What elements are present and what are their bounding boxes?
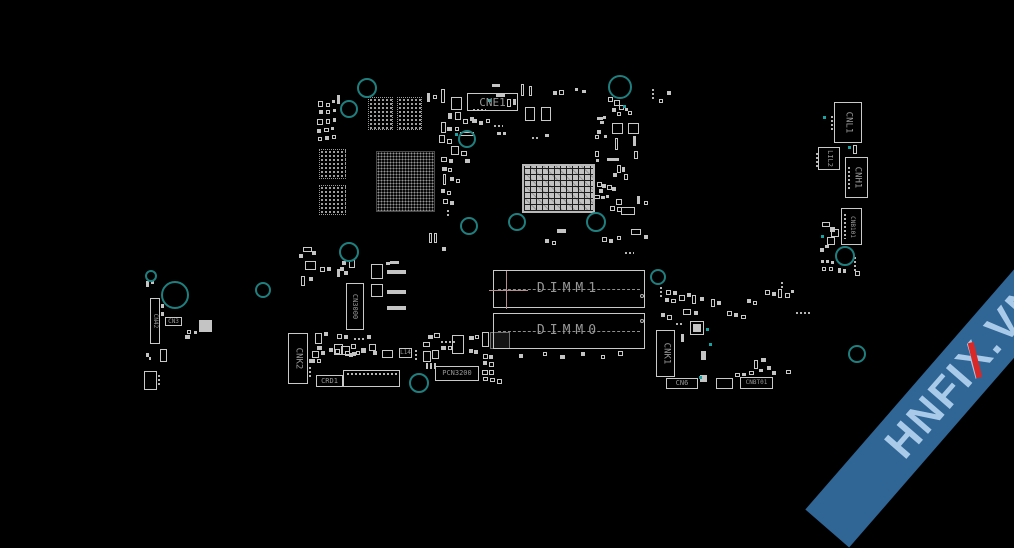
small-component	[609, 239, 613, 243]
small-component	[628, 111, 632, 115]
small-component	[673, 291, 677, 295]
small-component	[843, 269, 846, 273]
small-component	[430, 363, 432, 369]
small-component	[553, 91, 557, 95]
hole-highlight-circle	[508, 213, 526, 231]
small-component	[822, 222, 830, 227]
small-component	[308, 366, 313, 377]
small-component	[575, 88, 578, 91]
via-highlight	[709, 343, 712, 346]
small-component	[493, 124, 503, 127]
small-component	[149, 357, 151, 360]
small-component	[344, 271, 348, 275]
small-component	[333, 118, 336, 122]
small-component	[387, 306, 406, 310]
small-component	[303, 247, 312, 252]
small-component	[742, 373, 746, 376]
small-component	[606, 195, 609, 198]
small-component	[433, 95, 437, 99]
small-component	[596, 159, 599, 162]
small-component	[373, 351, 377, 355]
small-component	[829, 267, 833, 271]
small-component	[441, 122, 446, 133]
small-component	[353, 337, 365, 341]
small-component	[778, 289, 782, 298]
small-component	[194, 331, 197, 334]
small-component	[791, 290, 794, 293]
padgrid-chip[interactable]	[397, 97, 422, 130]
small-component	[531, 136, 540, 139]
small-component	[631, 229, 641, 235]
small-component	[541, 107, 551, 121]
padgrid-chip[interactable]	[368, 97, 393, 130]
hole-highlight-circle	[848, 345, 866, 363]
via-highlight	[623, 105, 626, 108]
small-component	[427, 93, 430, 102]
small-component	[853, 145, 857, 154]
small-component	[734, 313, 738, 317]
small-component	[423, 342, 430, 347]
small-component	[581, 352, 585, 356]
component-label: CNB101	[849, 216, 855, 238]
small-component	[414, 349, 419, 362]
component-label: CNL1	[844, 112, 853, 134]
small-component	[831, 261, 834, 264]
component-cn42[interactable]: CN42	[150, 298, 160, 344]
component-cn3000[interactable]: CN3000	[346, 283, 364, 330]
small-component	[469, 336, 474, 340]
hole-highlight-circle	[458, 130, 476, 148]
small-component	[451, 146, 459, 155]
small-component	[519, 354, 523, 358]
small-component	[434, 333, 440, 338]
small-component	[161, 304, 164, 308]
small-component	[759, 369, 763, 372]
component-l14[interactable]: L14	[399, 348, 412, 358]
small-component	[486, 119, 490, 123]
component-label: CN6	[676, 380, 689, 387]
small-component	[387, 270, 406, 274]
small-component	[326, 103, 330, 107]
small-component	[820, 248, 824, 252]
small-component	[483, 361, 487, 365]
small-component	[617, 165, 621, 173]
component-label: CNH1	[852, 167, 861, 189]
small-component	[367, 335, 371, 339]
small-component	[463, 119, 468, 124]
small-component	[749, 371, 754, 375]
hole-highlight-circle	[409, 373, 429, 393]
small-component	[615, 138, 618, 150]
small-component	[456, 179, 460, 183]
small-component	[503, 132, 506, 135]
small-component	[687, 293, 691, 297]
small-component	[644, 235, 648, 239]
small-component	[455, 112, 461, 120]
component-label: CN3	[168, 319, 179, 325]
small-component	[617, 112, 621, 116]
small-component	[475, 335, 479, 339]
small-component	[607, 158, 619, 161]
component-label: DIMM0	[494, 323, 644, 338]
small-component	[665, 298, 669, 302]
small-component	[483, 377, 488, 381]
small-component	[529, 86, 532, 96]
small-component	[361, 348, 366, 353]
small-component	[318, 137, 322, 141]
small-component	[337, 95, 340, 104]
small-component	[582, 90, 586, 93]
small-component	[637, 196, 640, 204]
small-component	[185, 335, 190, 339]
small-component	[659, 99, 663, 103]
small-component	[559, 90, 564, 95]
padgrid-chip[interactable]	[319, 185, 346, 215]
small-component	[349, 353, 353, 357]
small-component	[601, 196, 605, 199]
small-component	[661, 313, 665, 317]
small-component	[161, 312, 164, 316]
small-component	[474, 350, 478, 354]
small-component	[144, 371, 157, 390]
component-cnk1[interactable]: CNK1	[656, 330, 675, 377]
small-component	[694, 311, 698, 315]
small-component	[612, 108, 616, 112]
small-component	[482, 332, 489, 347]
component-label: CRD1	[321, 378, 338, 385]
small-component	[434, 233, 437, 243]
component-label: DIMM1	[494, 281, 644, 296]
small-component	[675, 322, 684, 326]
small-component	[299, 254, 303, 258]
small-component	[332, 100, 335, 103]
small-component	[681, 334, 684, 342]
small-component	[351, 344, 356, 349]
component-label: CNE1	[479, 97, 506, 108]
small-component	[489, 355, 493, 359]
small-component	[157, 374, 160, 386]
small-component	[329, 348, 333, 352]
small-component	[465, 159, 470, 163]
small-component	[633, 136, 636, 146]
component-cn3[interactable]: CN3	[165, 317, 182, 326]
small-component	[439, 135, 445, 143]
small-component	[441, 157, 447, 162]
via-highlight	[699, 376, 702, 379]
small-component	[382, 350, 393, 358]
hole-highlight-circle	[340, 100, 358, 118]
small-component	[602, 184, 606, 188]
small-component	[711, 299, 715, 307]
small-component	[497, 379, 502, 384]
small-component	[443, 174, 446, 185]
component-label: CN3000	[352, 294, 359, 319]
small-component	[423, 351, 431, 362]
component-lil2[interactable]: LIL2	[818, 147, 840, 170]
small-component	[624, 251, 634, 254]
small-component	[545, 239, 549, 243]
component-cn6[interactable]: CN6	[666, 378, 698, 389]
small-component	[325, 136, 329, 140]
component-label: CNBT01	[746, 380, 768, 386]
small-component	[469, 349, 473, 353]
small-component	[441, 346, 446, 350]
small-component	[628, 123, 639, 134]
small-component	[441, 89, 445, 103]
component-label: PCN3200	[442, 370, 472, 377]
hole-highlight-circle	[460, 217, 478, 235]
small-component	[450, 201, 454, 205]
small-component	[597, 130, 601, 134]
small-component	[146, 281, 149, 287]
via-highlight	[706, 328, 709, 331]
small-component	[492, 84, 500, 87]
small-component	[599, 189, 603, 193]
small-component	[369, 344, 376, 351]
hatch-chip[interactable]	[522, 164, 595, 213]
small-component	[324, 128, 329, 132]
small-component	[442, 247, 446, 251]
small-component	[450, 177, 454, 181]
small-component	[390, 261, 399, 264]
small-component	[692, 295, 696, 304]
small-component	[305, 261, 316, 270]
small-component	[301, 276, 305, 286]
small-component	[317, 346, 322, 350]
small-component	[545, 134, 549, 137]
small-component	[320, 267, 325, 272]
small-component	[344, 335, 348, 339]
small-component	[442, 167, 447, 171]
small-component	[371, 284, 383, 297]
component-cnk2[interactable]: CNK2	[288, 333, 308, 384]
small-component	[317, 359, 321, 363]
small-component	[324, 332, 328, 336]
small-component	[552, 241, 556, 245]
small-component	[785, 293, 790, 298]
small-component	[610, 206, 615, 211]
small-component	[429, 233, 432, 243]
small-component	[489, 362, 494, 367]
small-component	[651, 88, 655, 100]
small-component	[595, 151, 599, 157]
small-component	[825, 245, 829, 248]
component-dimm1[interactable]: DIMM1	[493, 270, 645, 308]
small-component	[452, 335, 464, 354]
small-component	[449, 159, 453, 163]
small-component	[326, 110, 330, 114]
small-component	[428, 335, 433, 339]
small-component	[754, 360, 758, 369]
small-component	[187, 330, 191, 334]
small-component	[671, 299, 676, 303]
hole-highlight-circle	[835, 246, 855, 266]
hole-highlight-circle	[608, 75, 632, 99]
small-component	[659, 286, 663, 299]
small-component	[634, 151, 638, 159]
component-label: CNK1	[661, 343, 670, 365]
hole-highlight-circle	[161, 281, 189, 309]
small-component	[741, 315, 746, 319]
via-highlight	[821, 235, 824, 238]
small-component	[472, 119, 477, 123]
small-component	[483, 354, 488, 359]
component-cnbt01[interactable]: CNBT01	[740, 377, 773, 389]
component-cnb101[interactable]: CNB101	[841, 208, 862, 245]
small-component	[557, 229, 566, 233]
small-component	[679, 295, 685, 301]
small-component	[312, 251, 316, 255]
small-component	[795, 311, 811, 316]
small-component	[612, 123, 623, 134]
small-component	[490, 378, 495, 382]
small-component	[767, 366, 771, 370]
small-component	[613, 173, 617, 177]
small-component	[199, 320, 212, 332]
component-pcn3200[interactable]: PCN3200	[435, 366, 479, 381]
via-highlight	[823, 116, 826, 119]
hole-highlight-circle	[145, 270, 157, 282]
small-component	[831, 229, 839, 237]
small-component	[601, 355, 605, 359]
small-component	[356, 351, 360, 355]
component-cnl1[interactable]: CNL1	[834, 102, 862, 143]
small-component	[317, 129, 321, 133]
via-highlight	[455, 133, 458, 136]
small-component	[160, 349, 167, 362]
small-component	[666, 290, 671, 295]
small-component	[608, 97, 613, 102]
small-component	[822, 267, 826, 271]
small-component	[617, 236, 621, 240]
small-component	[621, 207, 635, 215]
via-highlight	[848, 146, 851, 149]
hole-highlight-circle	[586, 212, 606, 232]
hole-highlight-circle	[357, 78, 377, 98]
small-component	[855, 271, 860, 276]
small-component	[747, 299, 751, 303]
small-component	[387, 290, 406, 294]
component-dimm0[interactable]: DIMM0	[493, 313, 645, 349]
small-component	[560, 355, 565, 359]
small-component	[321, 351, 325, 355]
small-component	[772, 292, 776, 296]
small-component	[497, 132, 501, 135]
small-component	[371, 264, 383, 279]
small-component	[332, 135, 336, 139]
small-component	[447, 191, 451, 195]
small-component	[624, 174, 628, 180]
small-component	[426, 363, 428, 369]
small-component	[333, 109, 336, 112]
small-component	[716, 378, 733, 389]
padgrid-chip[interactable]	[319, 149, 346, 179]
small-component	[827, 237, 835, 245]
small-component	[489, 370, 494, 375]
component-label: LIL2	[825, 150, 832, 167]
component-cne1[interactable]: CNE1	[467, 93, 518, 111]
small-component	[700, 297, 704, 301]
component-crd1[interactable]: CRD1	[316, 375, 343, 387]
small-component	[600, 121, 604, 124]
hole-highlight-circle	[255, 282, 271, 298]
component-label: CN42	[152, 314, 158, 328]
hole-highlight-circle	[650, 269, 666, 285]
small-component	[667, 91, 671, 95]
small-component	[309, 277, 313, 281]
small-component	[451, 97, 462, 110]
small-component	[447, 127, 452, 131]
small-component	[312, 351, 319, 358]
small-component	[543, 352, 547, 356]
small-component	[315, 333, 322, 344]
small-component	[525, 107, 535, 121]
small-component	[443, 199, 448, 204]
small-component	[331, 127, 334, 130]
small-component	[616, 199, 622, 205]
small-component	[335, 349, 340, 354]
small-component	[327, 267, 331, 271]
small-component	[602, 237, 607, 242]
small-component	[482, 370, 488, 375]
small-component	[603, 116, 606, 119]
small-component	[447, 139, 452, 144]
small-component	[340, 267, 344, 271]
small-component	[683, 309, 691, 315]
component-cnh1[interactable]: CNH1	[845, 157, 868, 198]
small-component	[479, 121, 483, 125]
small-component	[838, 268, 841, 273]
small-component	[761, 358, 766, 362]
small-component	[326, 119, 330, 124]
small-component	[727, 311, 732, 316]
small-component	[317, 119, 323, 125]
small-component	[604, 135, 607, 138]
small-component	[595, 135, 599, 139]
small-component	[319, 110, 323, 114]
small-component	[461, 151, 467, 156]
bga-chip[interactable]	[376, 151, 435, 212]
small-component	[765, 290, 770, 295]
small-component	[448, 113, 452, 119]
small-component	[618, 351, 623, 356]
small-component	[521, 84, 524, 96]
boardview-canvas[interactable]: CNE1CNL1LIL2CNH1CNB101CN3000CNK2CNK1CRD1…	[0, 0, 1014, 438]
small-component	[622, 167, 625, 172]
small-component	[441, 189, 445, 193]
component-label: CNK2	[294, 348, 303, 370]
small-component	[318, 101, 323, 107]
small-component	[432, 350, 439, 359]
small-component	[780, 281, 784, 289]
small-component	[821, 260, 824, 263]
small-component	[693, 324, 701, 332]
small-component	[446, 209, 450, 218]
small-component	[309, 359, 315, 363]
small-component	[701, 351, 706, 360]
small-component	[717, 301, 721, 305]
small-component	[337, 334, 342, 339]
small-component	[448, 168, 452, 172]
component-label: L14	[400, 350, 411, 356]
small-component	[455, 127, 459, 131]
hole-highlight-circle	[339, 242, 359, 262]
small-component	[667, 315, 672, 320]
small-component	[772, 371, 776, 375]
small-component	[786, 370, 791, 374]
small-component	[644, 201, 648, 205]
small-component	[826, 260, 829, 263]
